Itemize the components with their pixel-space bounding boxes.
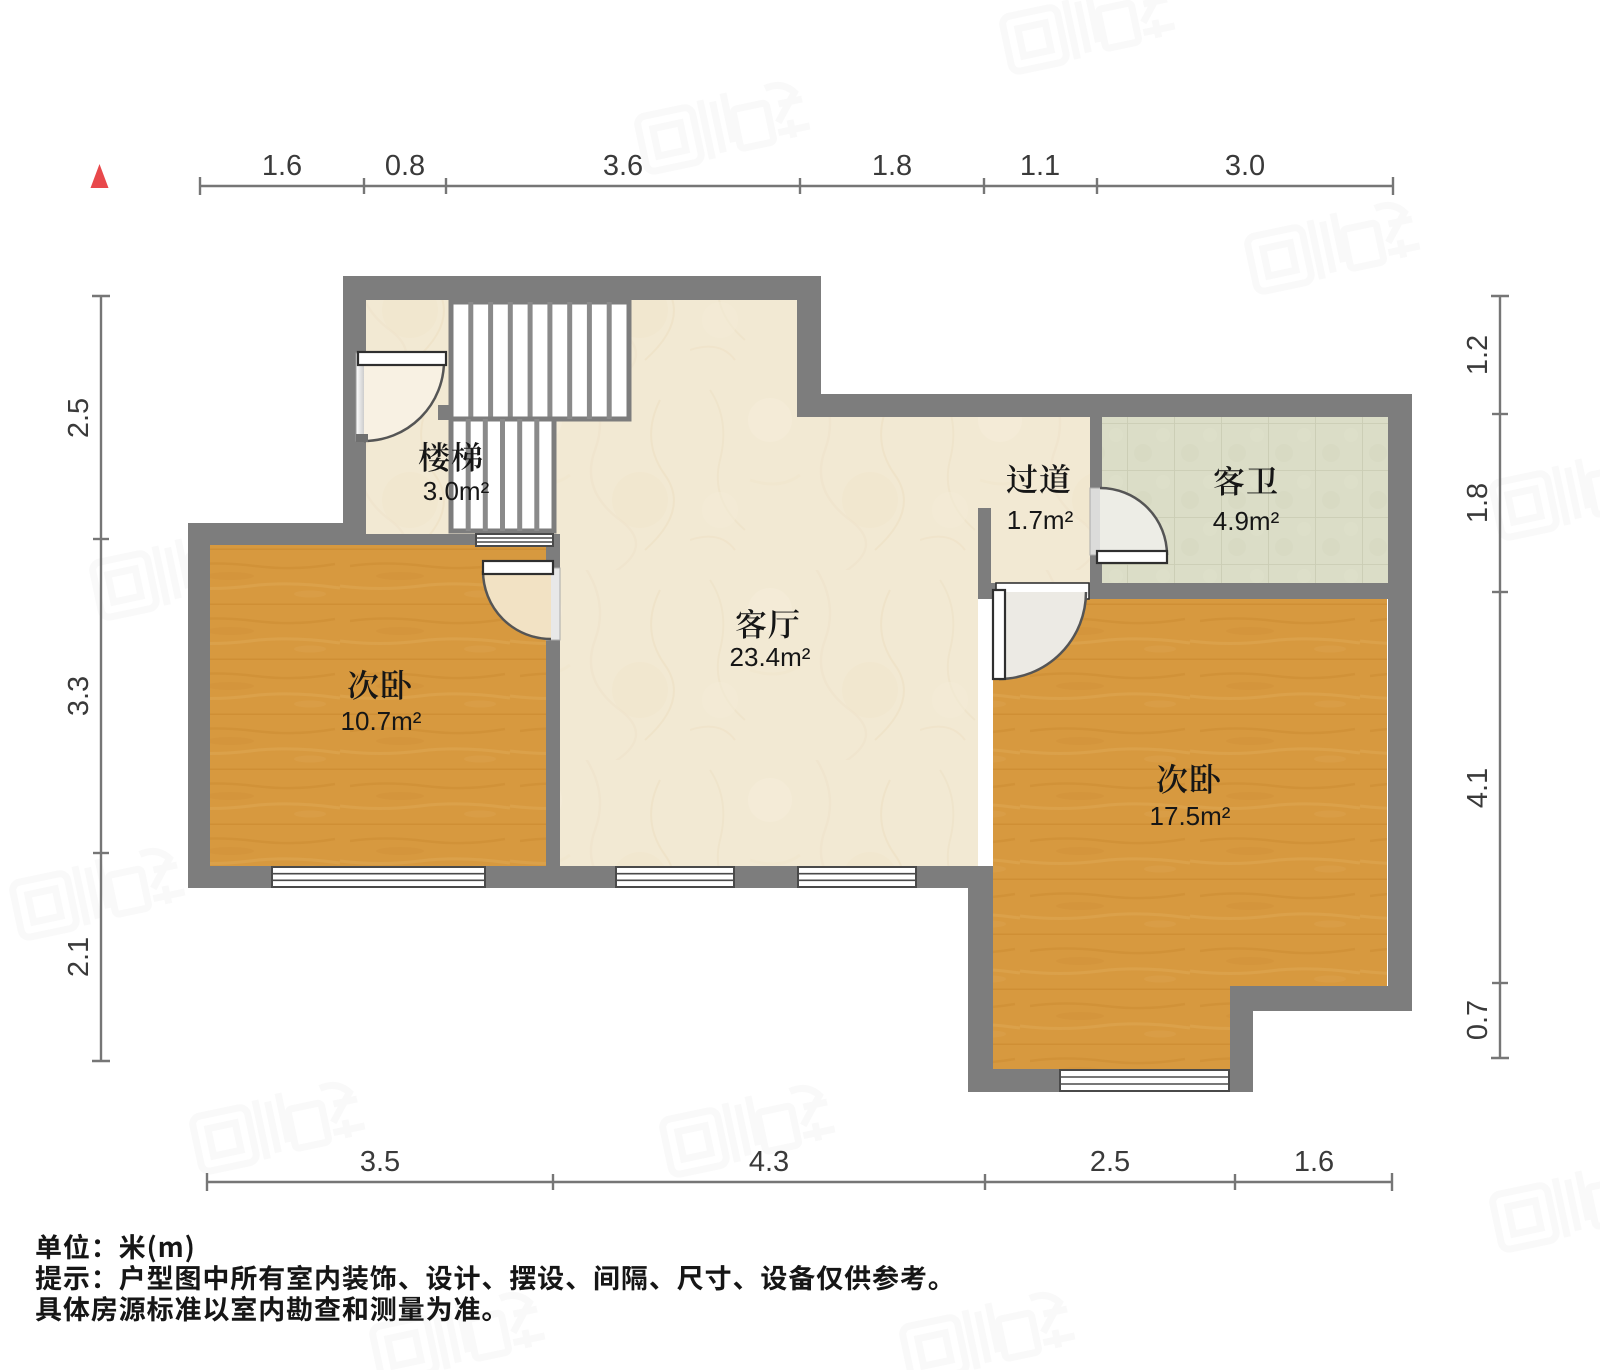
svg-text:3.5: 3.5 [360, 1146, 400, 1178]
svg-text:0.7: 0.7 [1462, 1000, 1494, 1040]
svg-text:2.5: 2.5 [63, 398, 95, 438]
svg-text:10.7m²: 10.7m² [341, 706, 422, 736]
svg-text:1.8: 1.8 [872, 150, 912, 182]
svg-text:4.3: 4.3 [749, 1146, 789, 1178]
svg-text:1.6: 1.6 [262, 150, 302, 182]
svg-text:4.9m²: 4.9m² [1213, 506, 1280, 536]
svg-text:2.5: 2.5 [1090, 1146, 1130, 1178]
svg-text:17.5m²: 17.5m² [1150, 801, 1231, 831]
svg-text:23.4m²: 23.4m² [730, 642, 811, 672]
svg-text:1.6: 1.6 [1294, 1146, 1334, 1178]
svg-text:3.0: 3.0 [1225, 150, 1265, 182]
svg-text:1.2: 1.2 [1462, 335, 1494, 375]
svg-text:4.1: 4.1 [1462, 768, 1494, 808]
svg-text:1.1: 1.1 [1020, 150, 1060, 182]
svg-text:1.8: 1.8 [1462, 483, 1494, 523]
svg-text:1.7m²: 1.7m² [1007, 505, 1074, 535]
svg-text:0.8: 0.8 [385, 150, 425, 182]
svg-text:3.0m²: 3.0m² [423, 476, 490, 506]
svg-text:3.6: 3.6 [603, 150, 643, 182]
svg-text:2.1: 2.1 [63, 937, 95, 977]
svg-text:3.3: 3.3 [63, 676, 95, 716]
